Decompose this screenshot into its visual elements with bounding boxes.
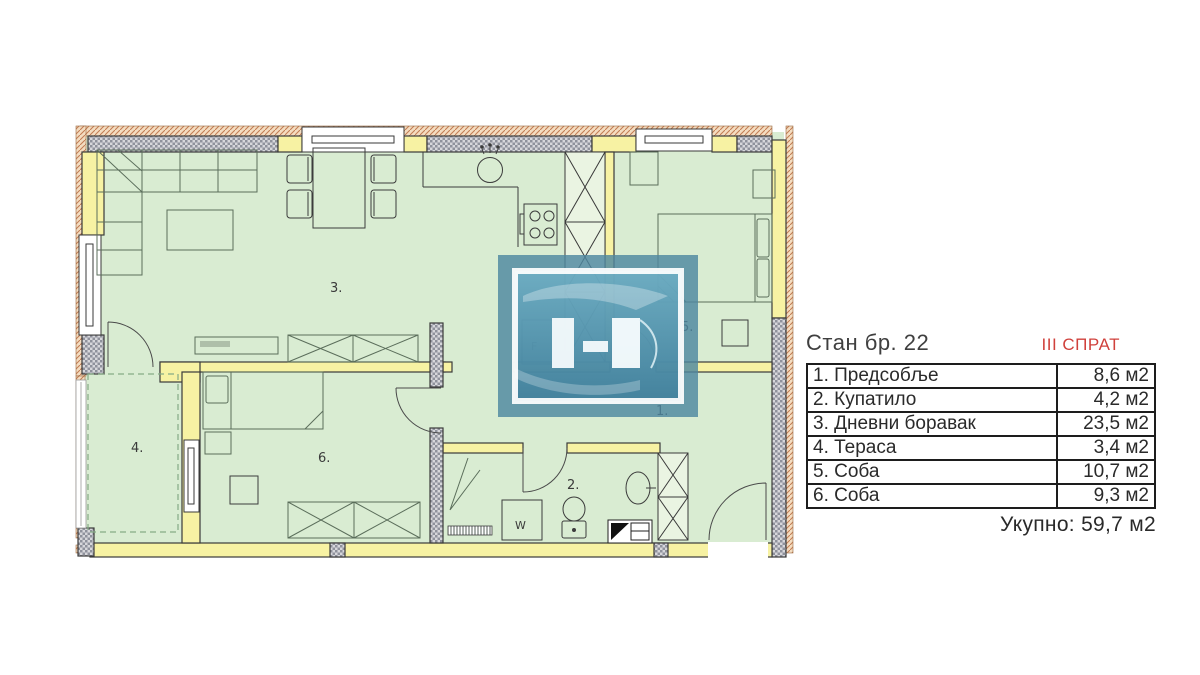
floor-plan: 3. 4. 5. 6. 1. 2. F W [75, 118, 795, 568]
watermark-logo [498, 255, 698, 417]
washer-label: W [515, 519, 526, 532]
area-table-body: 1. Предсобље8,6 м22. Купатило4,2 м23. Дн… [807, 364, 1155, 508]
room-area-cell: 9,3 м2 [1057, 484, 1155, 508]
room-name-cell: 4. Тераса [807, 436, 1057, 460]
room-name-cell: 1. Предсобље [807, 364, 1057, 388]
room-label-bathroom: 2. [567, 478, 579, 493]
room-label-terrace: 4. [131, 441, 143, 456]
room-area-cell: 23,5 м2 [1057, 412, 1155, 436]
panel-head: Стан бр. 22 III СПРАТ [806, 330, 1156, 356]
room-label-bedroom2: 6. [318, 451, 330, 466]
watermark-door-sill [583, 341, 608, 352]
room-name-cell: 6. Соба [807, 484, 1057, 508]
table-row: 1. Предсобље8,6 м2 [807, 364, 1155, 388]
table-row: 2. Купатило4,2 м2 [807, 388, 1155, 412]
area-table: 1. Предсобље8,6 м22. Купатило4,2 м23. Дн… [806, 363, 1156, 509]
room-area-cell: 4,2 м2 [1057, 388, 1155, 412]
table-row: 6. Соба9,3 м2 [807, 484, 1155, 508]
room-name-cell: 3. Дневни боравак [807, 412, 1057, 436]
room-area-cell: 10,7 м2 [1057, 460, 1155, 484]
watermark-door-leaf [612, 318, 640, 368]
table-row: 3. Дневни боравак23,5 м2 [807, 412, 1155, 436]
floor-mat [608, 520, 652, 543]
table-row: 5. Соба10,7 м2 [807, 460, 1155, 484]
table-row: 4. Тераса3,4 м2 [807, 436, 1155, 460]
entrance-opening [708, 542, 768, 558]
room-area-cell: 3,4 м2 [1057, 436, 1155, 460]
info-panel: Стан бр. 22 III СПРАТ 1. Предсобље8,6 м2… [806, 330, 1156, 537]
room-label-living: 3. [330, 281, 342, 296]
room-name-cell: 2. Купатило [807, 388, 1057, 412]
watermark-door-frame [552, 318, 574, 368]
total-area: Укупно: 59,7 м2 [806, 513, 1156, 537]
room-area-cell: 8,6 м2 [1057, 364, 1155, 388]
room-name-cell: 5. Соба [807, 460, 1057, 484]
apartment-title: Стан бр. 22 [806, 330, 929, 356]
floor-plan-svg: 3. 4. 5. 6. 1. 2. F W [75, 118, 795, 568]
terrace-railing [76, 380, 86, 528]
floor-label: III СПРАТ [1042, 335, 1121, 355]
